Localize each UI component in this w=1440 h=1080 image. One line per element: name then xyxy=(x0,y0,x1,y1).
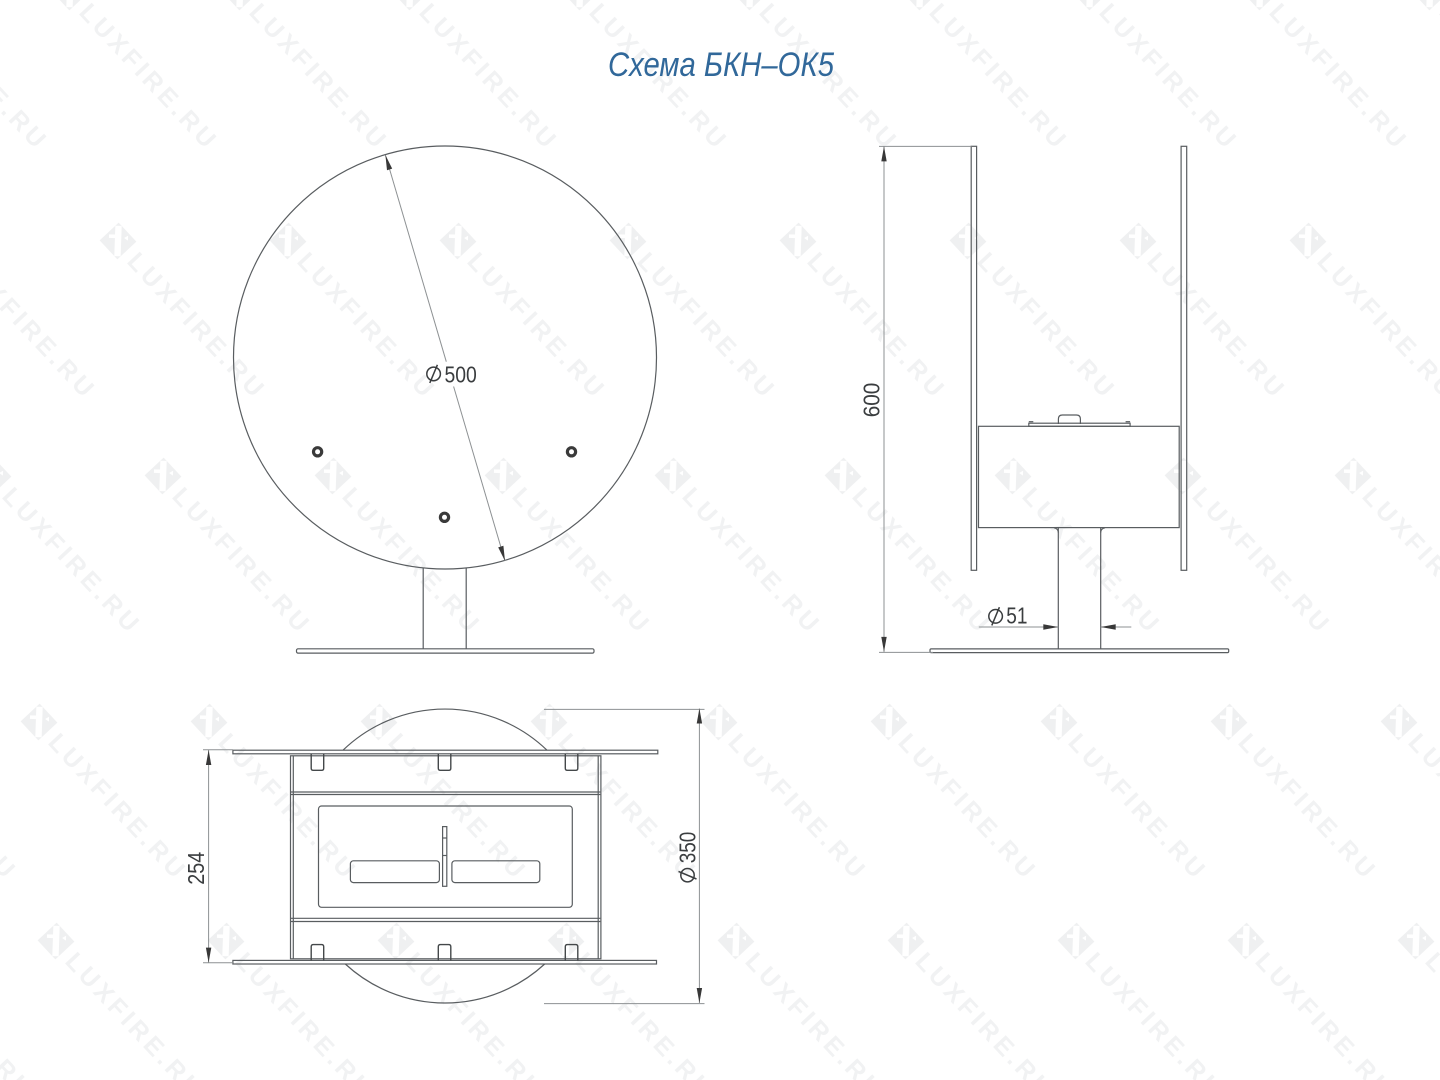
svg-text:350: 350 xyxy=(675,832,701,864)
svg-text:254: 254 xyxy=(183,852,209,885)
svg-text:600: 600 xyxy=(859,383,885,418)
svg-text:Схема БКН–ОК5: Схема БКН–ОК5 xyxy=(608,46,835,84)
svg-text:500: 500 xyxy=(445,361,477,387)
svg-text:51: 51 xyxy=(1006,603,1027,629)
